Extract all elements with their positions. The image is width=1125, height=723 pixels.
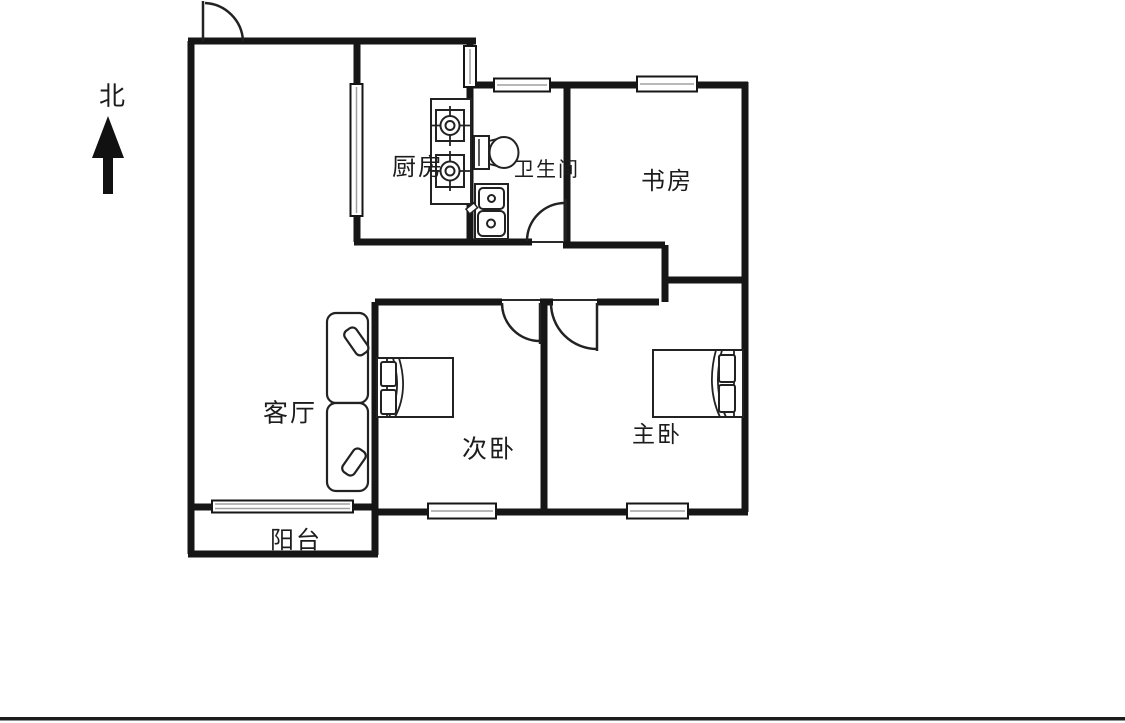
floor-plan-page: 北 厨房 卫生间 书房 客厅 次卧 主卧 阳台 (0, 0, 1125, 723)
secondary-bedroom-window (428, 504, 496, 519)
floor-plan-canvas: 北 厨房 卫生间 书房 客厅 次卧 主卧 阳台 (0, 0, 1125, 723)
study-window (637, 77, 697, 92)
lightwell-window (464, 46, 476, 87)
room-label-kitchen: 厨房 (392, 153, 444, 181)
bathroom-window (494, 79, 550, 92)
balcony-sliding-window (212, 501, 353, 513)
master-bedroom-window (627, 504, 688, 519)
room-label-balcony: 阳台 (270, 526, 322, 554)
bed-secondary-icon (377, 358, 453, 417)
bottom-border-line (0, 717, 1125, 721)
room-label-study: 书房 (641, 167, 693, 195)
toilet-icon (474, 136, 519, 169)
sofa-icon (327, 313, 370, 491)
north-arrow-icon (92, 116, 124, 194)
kitchen-window (351, 84, 363, 216)
room-label-master-bedroom: 主卧 (632, 422, 682, 448)
room-label-living-room: 客厅 (263, 399, 317, 428)
room-label-secondary-bedroom: 次卧 (462, 435, 516, 464)
compass-label: 北 (99, 82, 127, 112)
bathroom-door-icon (527, 199, 566, 241)
master-bedroom-door-icon (551, 303, 597, 351)
secondary-bedroom-door-icon (502, 303, 540, 344)
door-lintels (502, 242, 597, 300)
room-label-bathroom: 卫生间 (514, 157, 580, 181)
stove-icon (431, 99, 471, 204)
entry-door-icon (203, 1, 243, 41)
bed-master-icon (653, 350, 743, 417)
